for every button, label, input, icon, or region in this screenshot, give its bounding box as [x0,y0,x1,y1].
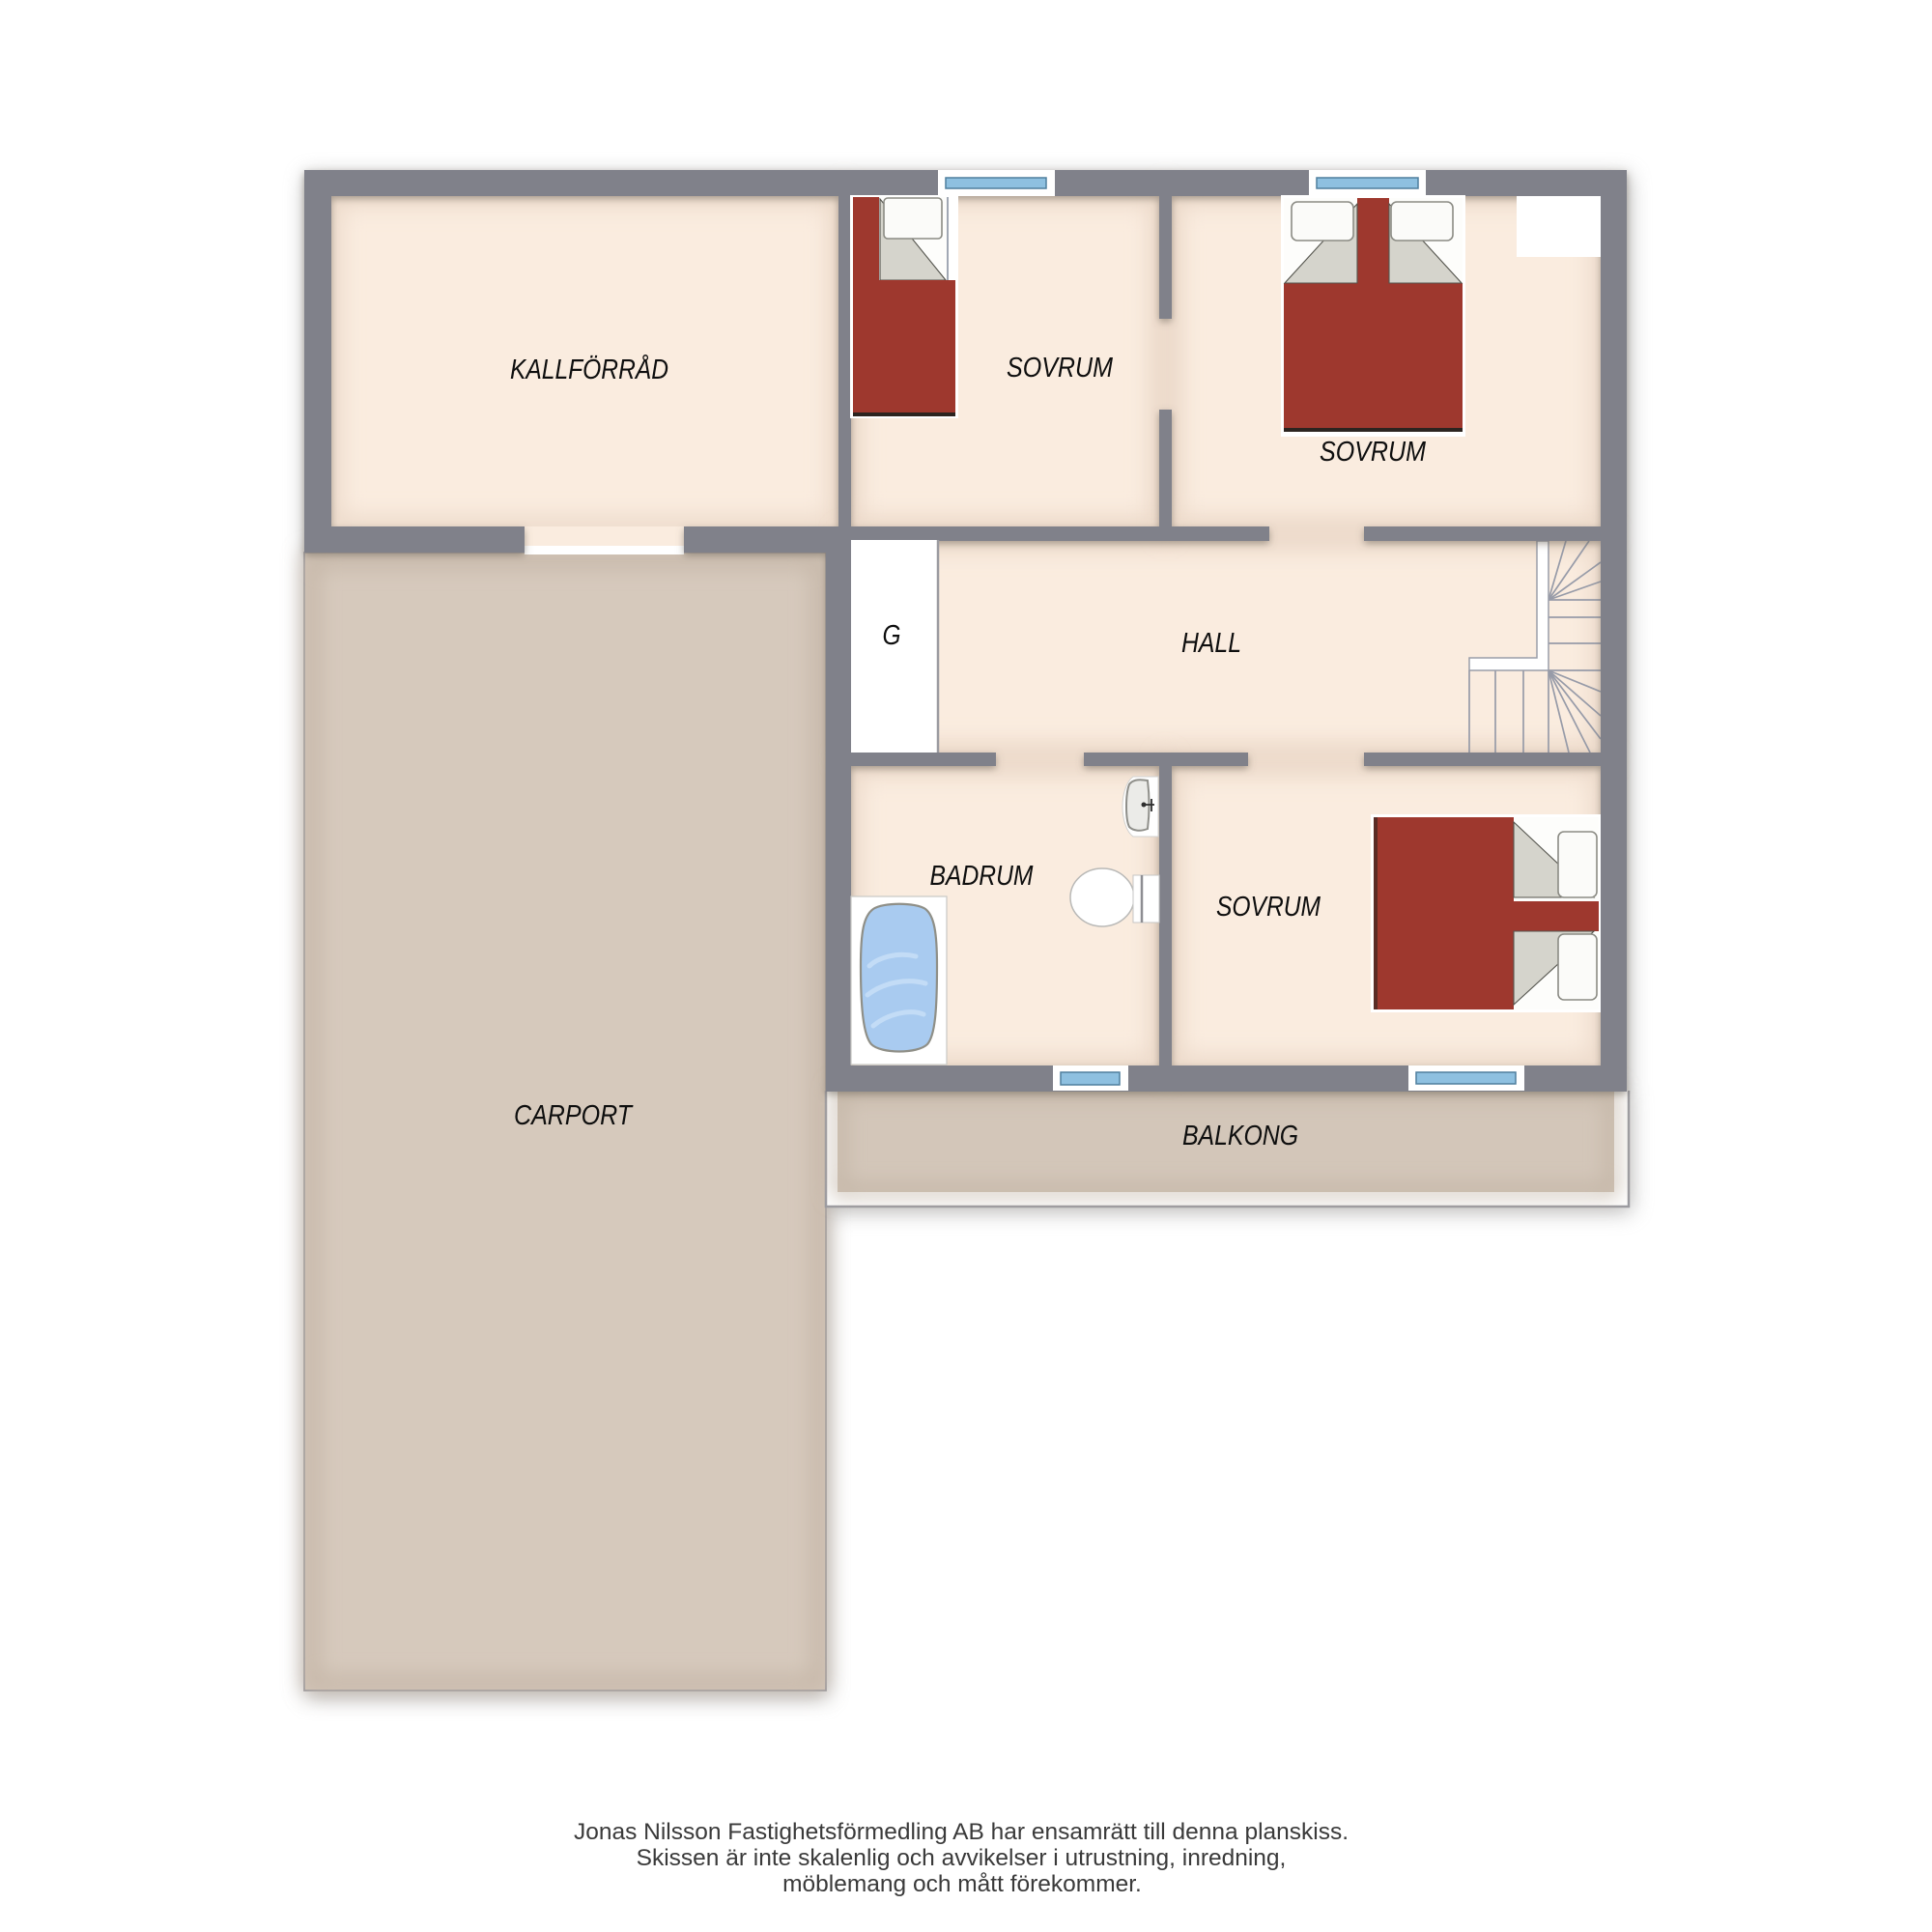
svg-text:G: G [883,620,901,651]
svg-text:möblemang och mått förekommer.: möblemang och mått förekommer. [782,1871,1142,1897]
svg-text:BALKONG: BALKONG [1182,1121,1298,1151]
svg-text:KALLFÖRRÅD: KALLFÖRRÅD [510,354,668,385]
svg-text:Skissen är inte skalenlig och: Skissen är inte skalenlig och avvikelser… [637,1845,1287,1871]
svg-text:SOVRUM: SOVRUM [1007,353,1114,384]
svg-text:Jonas Nilsson Fastighetsförmed: Jonas Nilsson Fastighetsförmedling AB ha… [574,1819,1349,1845]
svg-text:BADRUM: BADRUM [930,861,1035,892]
svg-text:HALL: HALL [1181,628,1241,659]
svg-text:CARPORT: CARPORT [514,1100,634,1131]
svg-text:SOVRUM: SOVRUM [1216,892,1321,923]
svg-text:SOVRUM: SOVRUM [1320,437,1427,468]
